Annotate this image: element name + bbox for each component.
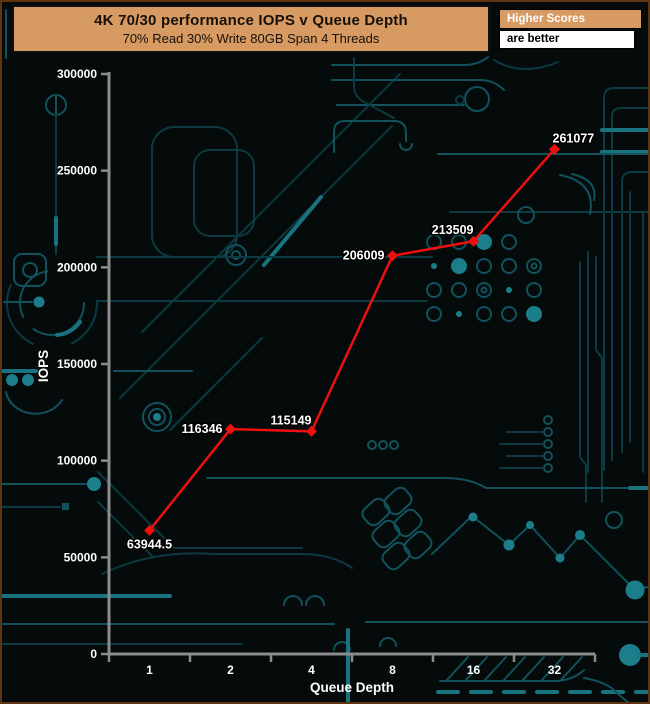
chart-title: 4K 70/30 performance IOPS v Queue Depth <box>14 12 488 29</box>
x-tick-label: 1 <box>146 663 153 677</box>
x-tick-label: 32 <box>548 663 562 677</box>
x-axis: 12481632Queue Depth <box>108 654 596 695</box>
data-points <box>144 144 560 536</box>
x-axis-title: Queue Depth <box>310 680 394 695</box>
are-better-note: are better <box>499 30 635 49</box>
data-point-label: 261077 <box>553 131 595 145</box>
y-tick-label: 200000 <box>57 260 97 274</box>
x-tick-label: 2 <box>227 663 234 677</box>
y-tick-label: 0 <box>90 647 97 661</box>
y-tick-label: 100000 <box>57 454 97 468</box>
iops-line-chart: 050000100000150000200000250000300000IOPS… <box>2 2 650 704</box>
y-tick-label: 150000 <box>57 357 97 371</box>
data-point-marker <box>387 250 398 261</box>
y-tick-label: 300000 <box>57 67 97 81</box>
data-point-label: 213509 <box>432 223 474 237</box>
higher-scores-note: Higher Scores <box>499 9 642 29</box>
chart-subtitle: 70% Read 30% Write 80GB Span 4 Threads <box>14 31 488 46</box>
x-tick-label: 4 <box>308 663 315 677</box>
data-point-label: 115149 <box>270 413 311 427</box>
data-point-label: 63944.5 <box>127 537 172 551</box>
x-tick-label: 16 <box>467 663 481 677</box>
data-labels: 63944.5116346115149206009213509261077 <box>127 131 594 551</box>
data-point-label: 206009 <box>343 249 385 263</box>
y-axis-title: IOPS <box>36 350 51 382</box>
screenshot-frame: 050000100000150000200000250000300000IOPS… <box>0 0 650 704</box>
x-tick-label: 8 <box>389 663 396 677</box>
y-tick-label: 50000 <box>64 550 98 564</box>
series-line <box>150 149 555 530</box>
y-tick-label: 250000 <box>57 164 97 178</box>
y-axis: 050000100000150000200000250000300000IOPS <box>36 67 109 661</box>
data-point-marker <box>306 426 317 437</box>
data-point-label: 116346 <box>181 422 222 436</box>
chart-title-box: 4K 70/30 performance IOPS v Queue Depth … <box>12 5 490 53</box>
